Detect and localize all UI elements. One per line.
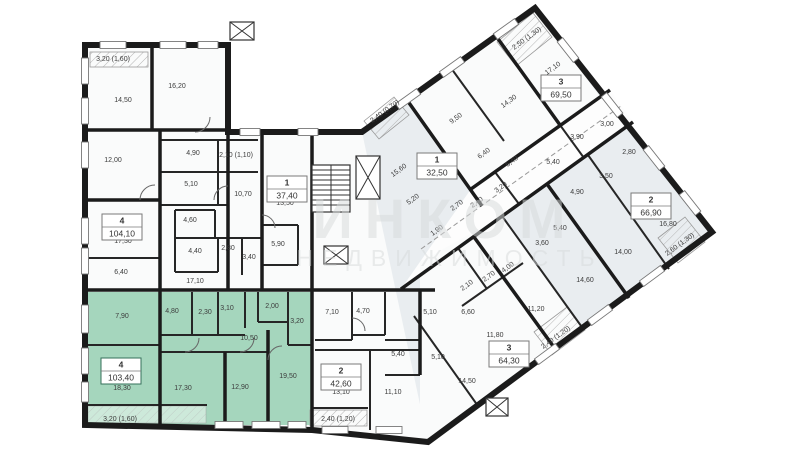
room-area-label: 6,40: [114, 269, 128, 276]
room-area-label: 4,80: [165, 308, 179, 315]
room-area-label: 2,80: [622, 149, 636, 156]
room-area-label: 10,50: [240, 335, 258, 342]
apartment-total-area: 42,60: [330, 379, 352, 389]
room-area-label: 6,60: [461, 309, 475, 316]
apartment-rooms-count: 4: [119, 360, 124, 370]
apartment-badge[interactable]: 364,30: [489, 341, 529, 367]
room-area-label: 18,30: [113, 385, 131, 392]
room-area-label: 16,80: [659, 221, 677, 228]
room-area-label: 11,80: [487, 332, 504, 339]
room-area-label: 5,40: [391, 351, 405, 358]
room-area-label: 17,10: [186, 278, 204, 285]
apartment-rooms-count: 2: [339, 366, 344, 376]
apartment-badge[interactable]: 4104,10: [102, 214, 142, 240]
room-area-label: 14,60: [576, 277, 594, 284]
room-area-label: 4,70: [356, 308, 370, 315]
apartment-total-area: 64,30: [498, 356, 520, 366]
room-area-label: 19,50: [279, 373, 297, 380]
room-area-label: 3,10: [220, 305, 234, 312]
room-area-label: 3,20: [290, 318, 304, 325]
apartment-total-area: 103,40: [108, 373, 134, 383]
apartment-badge[interactable]: 242,60: [321, 364, 361, 390]
room-area-label: 2,80: [221, 245, 235, 252]
apartment-rooms-count: 4: [120, 216, 125, 226]
apartment-badge[interactable]: 137,40: [267, 176, 307, 202]
apartment-total-area: 69,50: [550, 90, 572, 100]
watermark: ИНКОМ НЕДВИЖИМОСТЬ: [296, 187, 603, 271]
room-area-label: 5,10: [423, 309, 437, 316]
apartment-total-area: 66,90: [640, 208, 662, 218]
watermark-line1: ИНКОМ: [312, 187, 577, 250]
room-area-label: 2,40 (1,20): [321, 416, 355, 423]
room-area-label: 14,50: [114, 97, 132, 104]
apartment-rooms-count: 2: [649, 195, 654, 205]
room-area-label: 3,20 (1,60): [103, 416, 137, 423]
room-area-label: 5,90: [271, 241, 285, 248]
room-area-label: 10,70: [234, 191, 252, 198]
room-area-label: 2,00: [265, 303, 279, 310]
room-area-label: 7,90: [115, 313, 129, 320]
room-area-label: 5,10: [431, 354, 445, 361]
room-area-label: 12,90: [231, 384, 249, 391]
room-area-label: 2,30: [198, 309, 212, 316]
room-area-label: 16,20: [168, 83, 186, 90]
watermark-line2: НЕДВИЖИМОСТЬ: [296, 245, 603, 271]
room-area-label: 5,10: [184, 181, 198, 188]
floor-plan-page: 3,20 (1,60)14,5016,2012,004,902,10 (1,10…: [0, 0, 800, 450]
room-area-label: 14,50: [458, 378, 476, 385]
room-area-label: 4,90: [186, 150, 200, 157]
apartment-total-area: 32,50: [426, 168, 448, 178]
room-area-label: 3,00: [600, 121, 614, 128]
room-area-label: 14,00: [614, 249, 632, 256]
floor-plan: 3,20 (1,60)14,5016,2012,004,902,10 (1,10…: [0, 0, 800, 450]
room-area-label: 11,10: [385, 389, 402, 396]
room-area-label: 4,40: [188, 248, 202, 255]
room-area-label: 12,00: [104, 157, 122, 164]
apartment-badge[interactable]: 369,50: [541, 75, 581, 101]
apartment-rooms-count: 1: [435, 155, 440, 165]
apartment-badge[interactable]: 4103,40: [101, 358, 141, 384]
room-area-label: 11,20: [528, 306, 545, 313]
apartment-rooms-count: 3: [507, 343, 512, 353]
apartment-total-area: 104,10: [109, 229, 135, 239]
apartment-rooms-count: 1: [285, 178, 290, 188]
room-area-label: 3,20 (1,60): [96, 56, 130, 63]
apartment-total-area: 37,40: [276, 191, 298, 201]
apartment-badge[interactable]: 132,50: [417, 153, 457, 179]
room-area-label: 7,10: [325, 309, 339, 316]
room-area-label: 3,50: [599, 173, 613, 180]
room-area-label: 3,90: [570, 134, 584, 141]
room-area-label: 2,10 (1,10): [219, 152, 253, 159]
room-area-label: 4,60: [183, 217, 197, 224]
room-area-label: 17,30: [174, 385, 192, 392]
room-area-label: 3,40: [242, 254, 256, 261]
room-area-label: 5,40: [546, 159, 560, 166]
apartment-rooms-count: 3: [559, 77, 564, 87]
apartment-badge[interactable]: 266,90: [631, 193, 671, 219]
